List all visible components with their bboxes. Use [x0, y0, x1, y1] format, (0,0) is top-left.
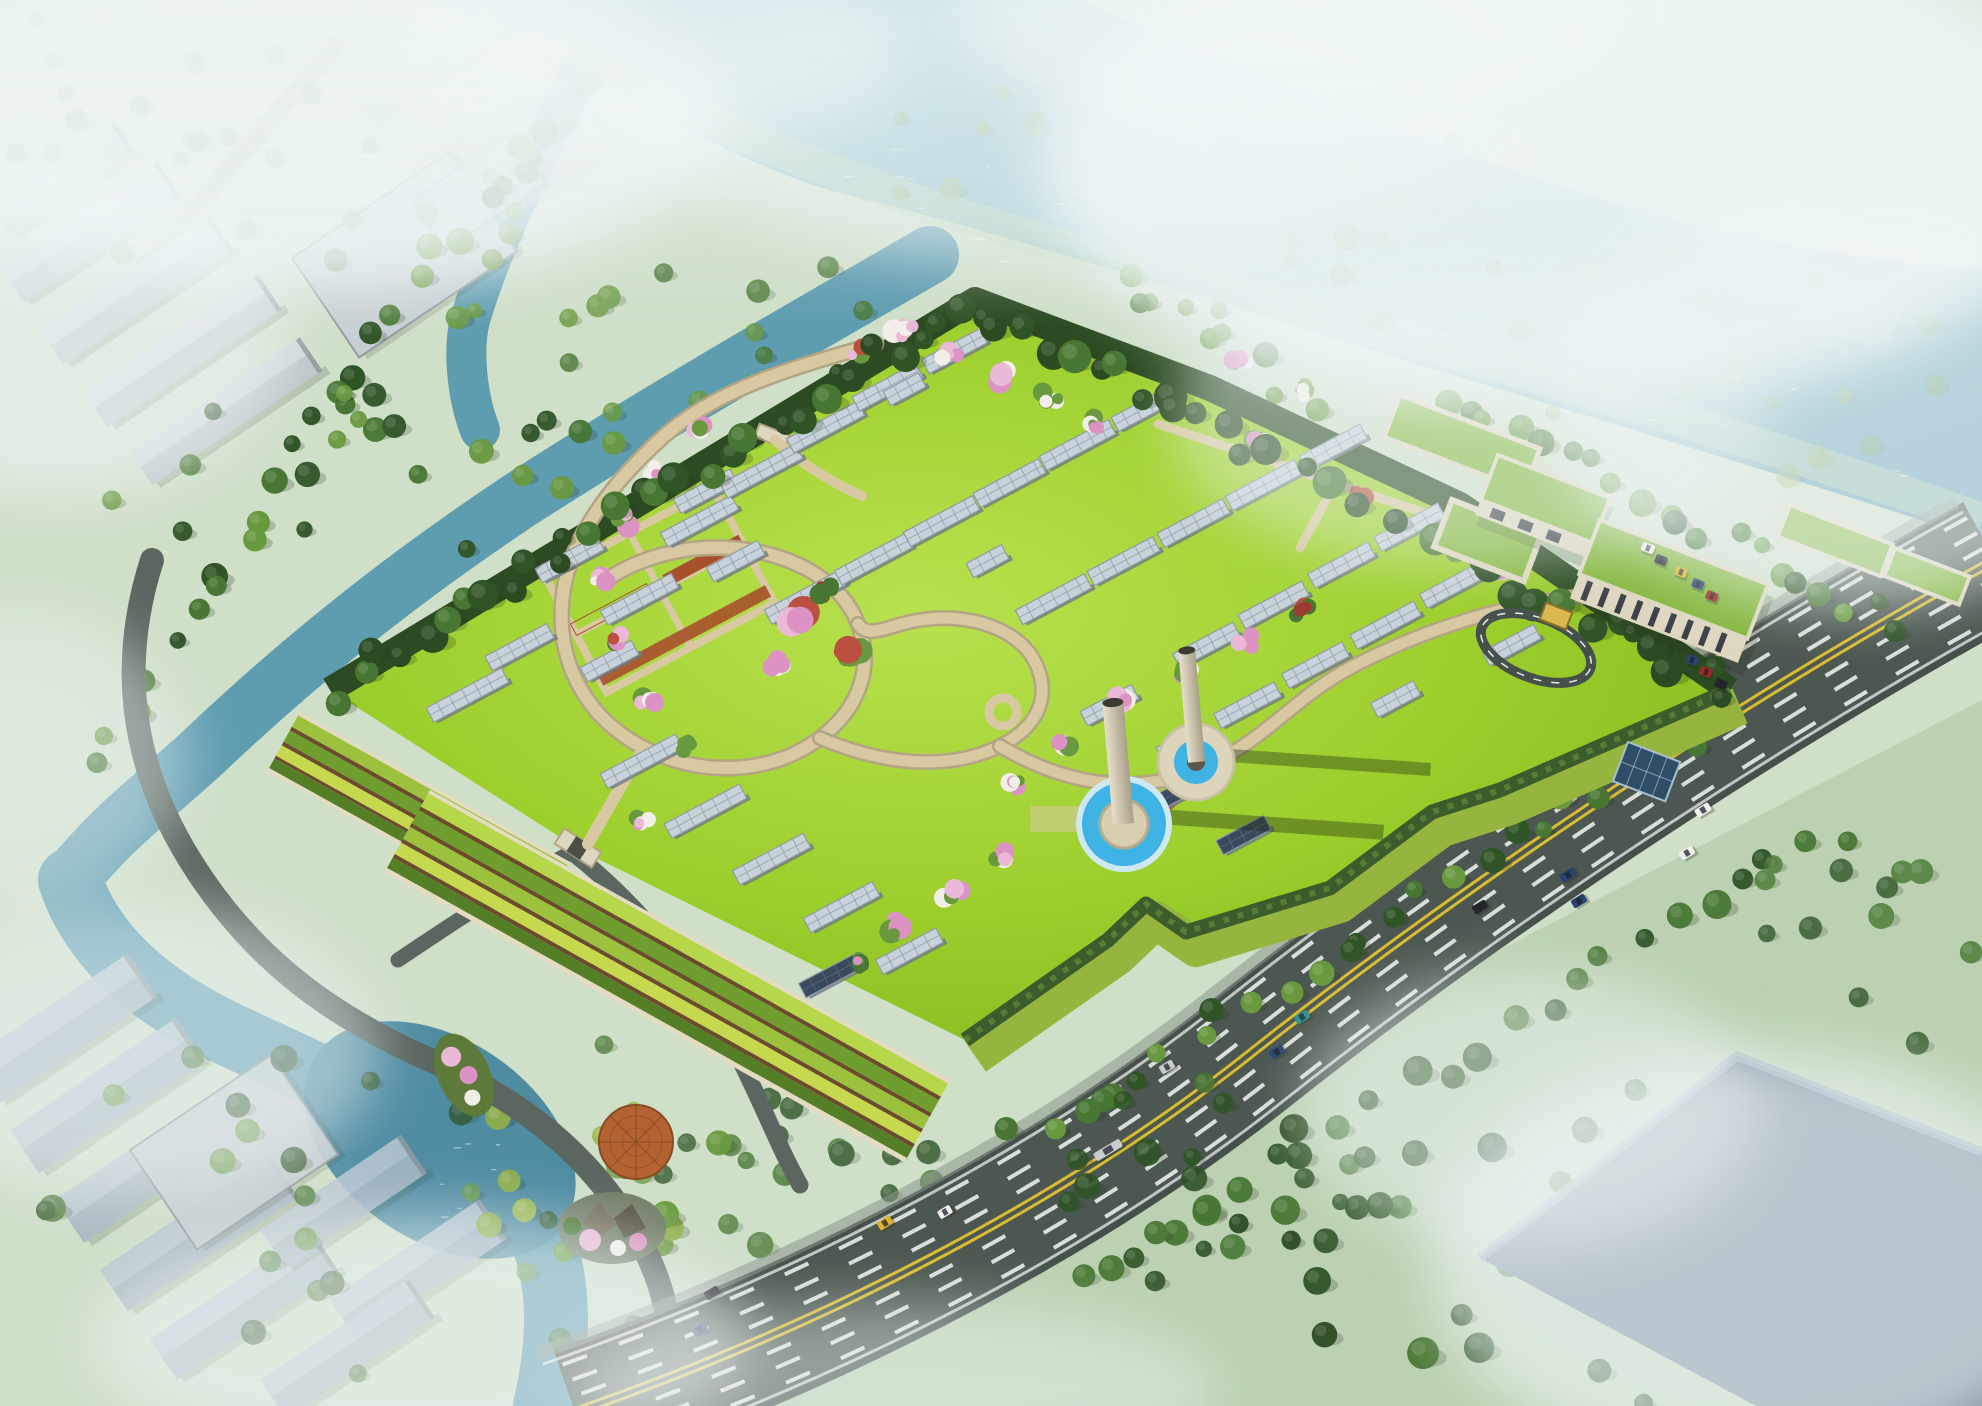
tree-highlight	[1048, 1121, 1058, 1131]
tree-highlight	[1802, 919, 1812, 929]
tree-highlight	[605, 405, 614, 414]
tree-highlight	[1963, 944, 1973, 954]
tree-highlight	[1126, 1250, 1135, 1259]
tree-highlight	[464, 1185, 472, 1193]
tree-highlight	[1197, 1075, 1206, 1084]
tree-highlight	[1871, 906, 1883, 918]
tree-highlight	[731, 427, 744, 440]
tree-highlight	[1582, 617, 1595, 630]
flower-tuft	[787, 607, 814, 634]
tree-highlight	[1129, 1074, 1137, 1082]
tree-highlight	[539, 413, 548, 422]
tree-highlight	[1231, 1216, 1240, 1225]
tree-highlight	[501, 1172, 511, 1182]
tree-highlight	[1186, 1150, 1194, 1158]
tree-highlight	[1105, 354, 1116, 365]
tree-highlight	[175, 524, 184, 533]
tree-highlight	[553, 479, 564, 490]
tree-highlight	[1075, 1267, 1085, 1277]
tree-highlight	[1147, 1224, 1158, 1235]
flower-tuft	[645, 693, 664, 712]
tree-highlight	[1760, 927, 1768, 935]
tree-highlight	[555, 530, 564, 539]
tree-highlight	[644, 482, 657, 495]
tree-highlight	[1754, 852, 1763, 861]
tree-highlight	[571, 423, 582, 434]
tree-highlight	[1590, 949, 1599, 958]
tree-highlight	[1832, 862, 1843, 873]
tree-highlight	[1670, 906, 1682, 918]
tree-highlight	[329, 694, 340, 705]
tree-highlight	[816, 388, 830, 402]
tree-highlight	[1102, 1258, 1114, 1270]
tree-highlight	[1343, 942, 1353, 952]
tree-highlight	[421, 625, 435, 639]
tree-highlight	[1149, 1046, 1157, 1054]
tree-highlight	[680, 1136, 688, 1144]
tree-highlight	[1215, 1095, 1224, 1104]
tree-highlight	[1911, 862, 1922, 873]
tree-highlight	[1283, 1118, 1296, 1131]
flower-tuft	[1243, 631, 1254, 642]
tree-highlight	[1386, 909, 1396, 919]
tree-highlight	[1116, 1094, 1124, 1102]
tree-highlight	[358, 663, 368, 673]
flower-tuft	[608, 633, 620, 645]
flower-tuft	[998, 852, 1012, 866]
wooden-deck	[599, 1105, 673, 1179]
tree-highlight	[250, 514, 260, 524]
flower-tuft	[853, 956, 862, 965]
tree-highlight	[895, 347, 908, 360]
tree-highlight	[411, 467, 419, 475]
tree-highlight	[842, 369, 854, 381]
tree-highlight	[1137, 1142, 1149, 1154]
tree-highlight	[304, 409, 312, 417]
tree-highlight	[1655, 660, 1669, 674]
tree-highlight	[1270, 1146, 1279, 1155]
tree-highlight	[1537, 823, 1544, 830]
tree-highlight	[297, 1188, 307, 1198]
tree-highlight	[757, 349, 765, 357]
flower-tuft	[990, 363, 1013, 386]
tree-highlight	[330, 433, 338, 441]
flower-tuft	[773, 656, 790, 673]
flower-tuft	[1052, 393, 1063, 404]
tree-highlight	[1411, 1341, 1425, 1355]
tree-highlight	[1312, 964, 1323, 975]
tree-highlight	[514, 552, 525, 563]
tree-highlight	[1230, 1180, 1242, 1192]
tree-highlight	[1307, 1270, 1320, 1283]
tree-highlight	[1521, 593, 1536, 608]
flower-tuft	[1039, 395, 1052, 408]
tree-highlight	[831, 366, 839, 374]
tree-highlight	[997, 1120, 1008, 1131]
tree-highlight	[883, 1186, 891, 1194]
tree-highlight	[298, 465, 309, 476]
tree-highlight	[1501, 584, 1515, 598]
tree-highlight	[1061, 1194, 1070, 1203]
tree-highlight	[1062, 344, 1077, 359]
tree-highlight	[1334, 1196, 1341, 1203]
tree-highlight	[338, 387, 345, 394]
tree-highlight	[362, 641, 373, 652]
tree-highlight	[1851, 990, 1860, 999]
tree-highlight	[1483, 851, 1494, 862]
tree-highlight	[524, 426, 532, 434]
sparkle	[496, 1144, 500, 1145]
tree-highlight	[365, 386, 376, 397]
tree-highlight	[385, 417, 396, 428]
flower-tuft	[1089, 422, 1099, 432]
tree-highlight	[793, 410, 805, 422]
tree-highlight	[352, 413, 360, 421]
sparkle	[440, 1184, 443, 1185]
flower-tuft	[888, 928, 900, 940]
fog-patch	[1170, 270, 1770, 570]
tree-highlight	[562, 356, 570, 364]
tree-highlight	[1297, 1171, 1306, 1180]
tree-highlight	[1198, 1243, 1205, 1250]
flower-tuft	[834, 645, 848, 659]
tree-highlight	[515, 1201, 526, 1212]
aerial-site-rendering	[0, 0, 1982, 1406]
rendering-canvas	[0, 0, 1982, 1406]
tree-highlight	[191, 601, 201, 611]
flower-tuft	[1051, 734, 1067, 750]
tree-highlight	[709, 1133, 720, 1144]
tree-highlight	[1243, 994, 1253, 1004]
tree-highlight	[721, 1216, 730, 1225]
sparkle	[465, 1143, 471, 1144]
flower-tuft	[692, 420, 708, 436]
tree-highlight	[1714, 691, 1723, 700]
tree-highlight	[471, 584, 485, 598]
tree-highlight	[1550, 592, 1563, 605]
tree-highlight	[919, 1143, 930, 1154]
tree-highlight	[553, 556, 562, 565]
tree-highlight	[605, 434, 616, 445]
tree-highlight	[750, 1235, 762, 1247]
flower-tuft	[634, 818, 644, 828]
tree-highlight	[1706, 894, 1719, 907]
tree-highlight	[1909, 1035, 1919, 1045]
flower-tuft	[1009, 776, 1020, 787]
tree-highlight	[208, 578, 217, 587]
tree-highlight	[246, 531, 257, 542]
tree-highlight	[1135, 392, 1144, 401]
tree-highlight	[1196, 1201, 1209, 1214]
fog-patch	[1300, 970, 1760, 1250]
tree-highlight	[1223, 1237, 1234, 1248]
tree-highlight	[917, 332, 926, 341]
tree-highlight	[1077, 1176, 1089, 1188]
tree-highlight	[1202, 1001, 1213, 1012]
flower-tuft	[1294, 603, 1308, 617]
tree-highlight	[1200, 1028, 1209, 1037]
flower-tuft	[945, 879, 965, 899]
tree-highlight	[661, 466, 675, 480]
tree-highlight	[1041, 341, 1056, 356]
tree-highlight	[265, 471, 277, 483]
sparkle	[491, 1169, 496, 1170]
tree-highlight	[1094, 1092, 1105, 1103]
tree-highlight	[391, 647, 401, 657]
sparkle	[458, 1208, 461, 1209]
tree-highlight	[455, 590, 465, 600]
tree-highlight	[472, 442, 483, 453]
tree-highlight	[515, 467, 525, 477]
flower-tuft	[810, 584, 830, 604]
tree-highlight	[604, 495, 617, 508]
tree-highlight	[778, 416, 788, 426]
tree-highlight	[460, 542, 468, 550]
tree-highlight	[783, 1099, 794, 1110]
tree-highlight	[1147, 1273, 1156, 1282]
tree-highlight	[597, 1038, 605, 1046]
flower-tuft	[596, 572, 615, 591]
tree-highlight	[1184, 1169, 1196, 1181]
tree-highlight	[1735, 871, 1744, 880]
tree-highlight	[1284, 984, 1294, 994]
tree-highlight	[1766, 857, 1774, 865]
tree-highlight	[1840, 834, 1849, 843]
tree-highlight	[740, 1154, 748, 1162]
tree-highlight	[1069, 1151, 1079, 1161]
tree-highlight	[1638, 931, 1646, 939]
tree-highlight	[1887, 623, 1897, 633]
tree-highlight	[1284, 1233, 1293, 1242]
tree-highlight	[1894, 863, 1904, 873]
tree-highlight	[832, 1144, 844, 1156]
flower-tuft	[677, 737, 688, 748]
tree-highlight	[1317, 1231, 1328, 1242]
tree-highlight	[1797, 833, 1807, 843]
tree-highlight	[172, 634, 179, 641]
tree-highlight	[1408, 883, 1416, 891]
sparkle	[454, 1147, 462, 1148]
tree-highlight	[863, 336, 873, 346]
tree-highlight	[1445, 868, 1456, 879]
tree-highlight	[1757, 872, 1766, 881]
tree-highlight	[286, 437, 294, 445]
tree-highlight	[704, 467, 715, 478]
tree-highlight	[1315, 1325, 1326, 1336]
tree-highlight	[1879, 879, 1889, 889]
tree-highlight	[298, 523, 305, 530]
tree-highlight	[438, 610, 450, 622]
tree-highlight	[343, 368, 354, 379]
tree-highlight	[1274, 1199, 1287, 1212]
tree-highlight	[38, 1203, 47, 1212]
tree-highlight	[579, 524, 590, 535]
tree-highlight	[507, 583, 517, 593]
tree-highlight	[1078, 1102, 1089, 1113]
flower-tuft	[934, 350, 950, 366]
